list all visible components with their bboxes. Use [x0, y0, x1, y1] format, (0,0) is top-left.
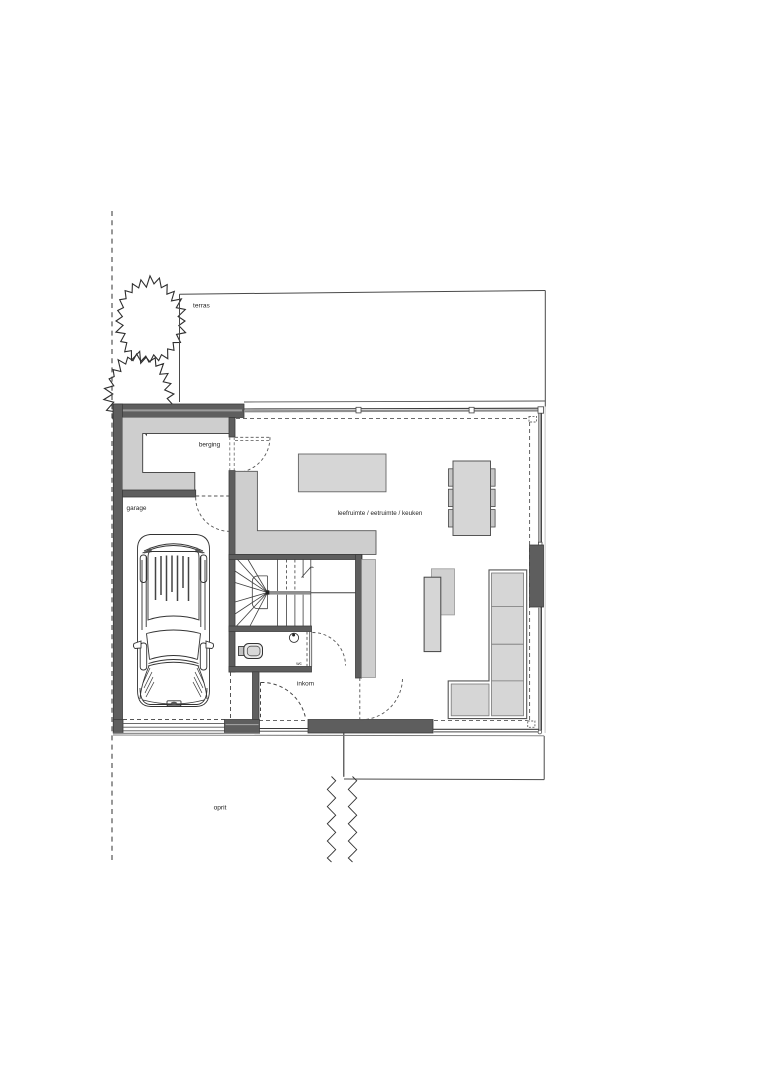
svg-text:leefruimte / eetruimte / keuke: leefruimte / eetruimte / keuken: [338, 510, 423, 517]
svg-text:berging: berging: [199, 442, 221, 449]
svg-text:oprit: oprit: [214, 805, 227, 812]
svg-text:inkom: inkom: [297, 681, 314, 688]
svg-text:terras: terras: [193, 303, 211, 310]
svg-text:garage: garage: [127, 505, 147, 512]
svg-text:wc: wc: [296, 661, 302, 666]
